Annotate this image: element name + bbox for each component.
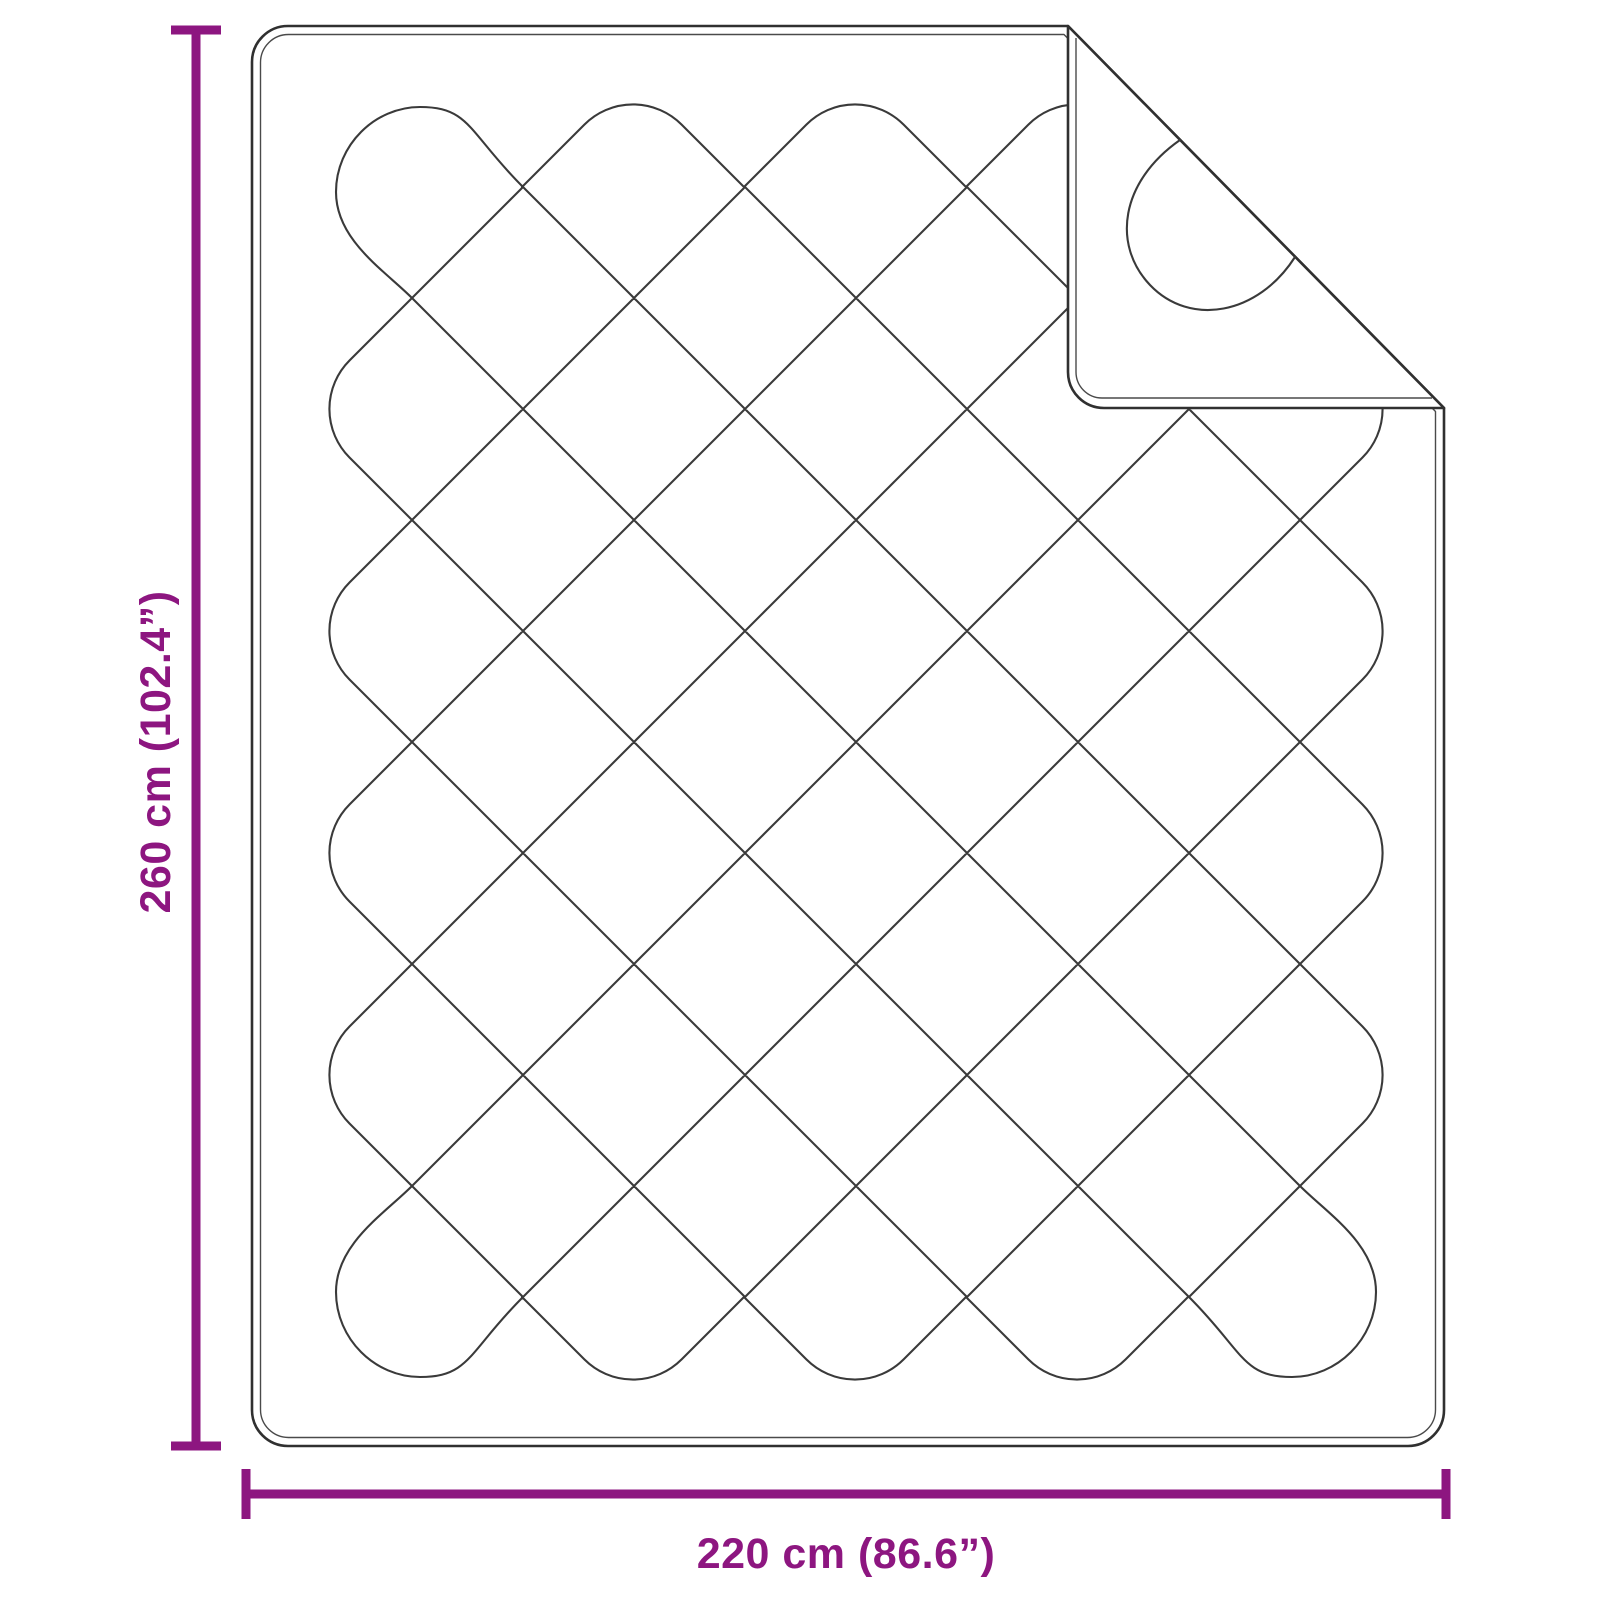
width-dimension: 220 cm (86.6”) [246,1469,1446,1578]
height-dimension: 260 cm (102.4”) [132,30,221,1446]
folded-corner-flap [1068,26,1444,408]
blanket-dimension-diagram: 260 cm (102.4”) 220 cm (86.6”) [0,0,1600,1600]
folded-corner [1068,26,1444,408]
width-dimension-label: 220 cm (86.6”) [697,1530,996,1578]
height-dimension-label: 260 cm (102.4”) [132,590,180,913]
diagram-canvas: 260 cm (102.4”) 220 cm (86.6”) [0,0,1600,1600]
